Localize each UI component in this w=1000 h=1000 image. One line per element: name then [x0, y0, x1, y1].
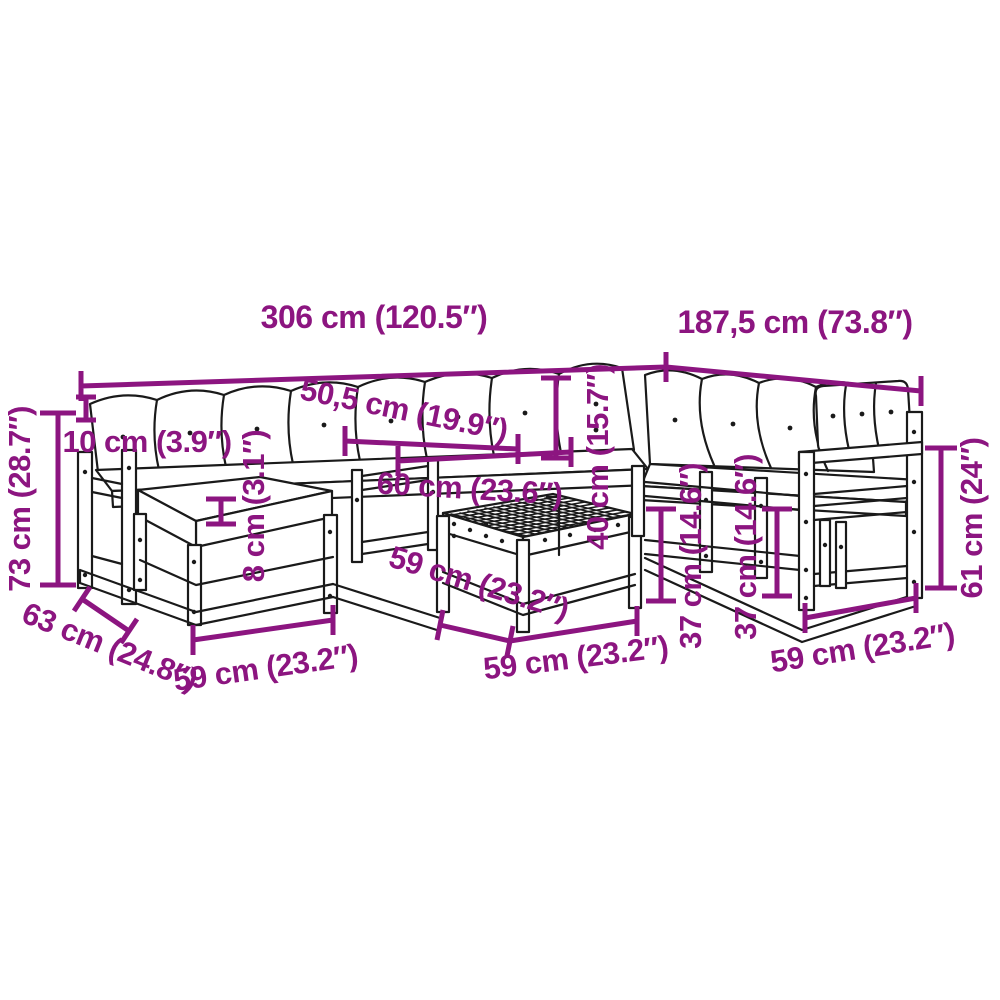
dim-total-width-right-label: 187,5 cm (73.8″) [677, 304, 912, 340]
dim-armchair-height [925, 448, 957, 588]
dim-frame-height-left-label: 37 cm (14.6″) [673, 463, 708, 649]
dim-module-width-right-label: 59 cm (23.2″) [768, 616, 957, 680]
dim-back-cushion-height-label: 40 cm (15.7″) [580, 364, 615, 550]
dim-frame-height-right-label: 37 cm (14.6″) [728, 454, 763, 640]
dim-seat-thickness-label: 8 cm (3.1″) [236, 430, 271, 582]
dim-module-depth-left-label: 63 cm (24.8″) [17, 595, 202, 697]
dim-total-height-label: 73 cm (28.7″) [2, 406, 37, 592]
diagram-svg: 306 cm (120.5″) 187,5 cm (73.8″) 73 cm (… [0, 0, 1000, 1000]
dim-armchair-height-label: 61 cm (24″) [954, 438, 989, 599]
dim-back-cushion-thickness-label: 10 cm (3.9″) [62, 424, 231, 459]
dim-total-width-left-label: 306 cm (120.5″) [261, 299, 488, 335]
product-dimension-diagram: 306 cm (120.5″) 187,5 cm (73.8″) 73 cm (… [0, 0, 1000, 1000]
armchair-cushion [816, 381, 911, 453]
